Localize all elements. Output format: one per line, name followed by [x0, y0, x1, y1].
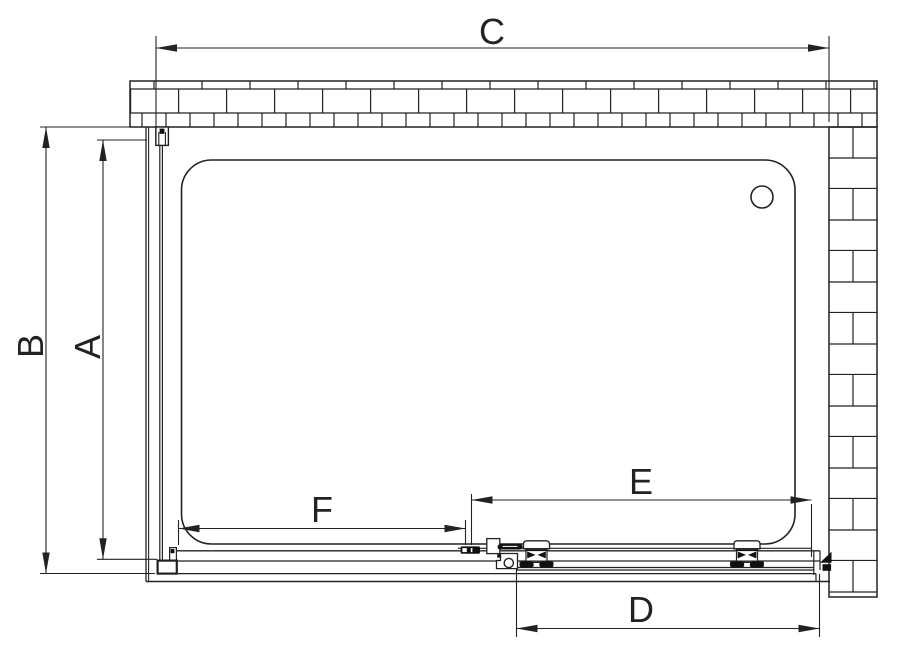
door-guide — [497, 554, 518, 569]
dimension-f: F — [179, 489, 466, 545]
dimension-label-f: F — [311, 489, 333, 530]
bottom-wall-profile — [158, 548, 177, 574]
arrowhead-right-icon — [799, 625, 820, 632]
glass-clamp-block — [160, 129, 165, 134]
dimension-e: E — [472, 461, 812, 557]
arrowhead-left-icon — [472, 496, 493, 503]
right-wall — [829, 127, 877, 597]
door-bumper — [498, 544, 523, 549]
bottom-rail — [177, 539, 832, 582]
arrowhead-right-icon — [808, 44, 829, 51]
stopper-slit — [471, 548, 473, 552]
guide-block — [497, 554, 500, 557]
shower-tray-outline — [182, 160, 796, 544]
technical-drawing-page: C B A F E — [0, 0, 900, 650]
left-roller — [520, 541, 554, 568]
wall-clamp — [820, 552, 832, 571]
dimension-label-d: D — [628, 589, 654, 630]
dimension-label-a: A — [67, 335, 108, 359]
clamp-block — [823, 564, 832, 571]
arrowhead-down-icon — [99, 538, 106, 559]
guide-wheel — [504, 558, 513, 567]
shower-tray — [182, 160, 796, 544]
right-roller — [730, 541, 764, 568]
right-wall-bricks — [829, 127, 877, 597]
profile-foot — [158, 561, 177, 574]
top-wall-profile — [156, 127, 169, 145]
dimension-d: D — [517, 569, 820, 637]
arrowhead-left-icon — [156, 44, 177, 51]
top-wall — [130, 81, 877, 127]
dimension-label-b: B — [10, 334, 51, 358]
bumper-slit — [503, 546, 518, 547]
glass-hole — [751, 186, 773, 208]
arrowhead-up-icon — [42, 127, 49, 148]
shower-enclosure-diagram: C B A F E — [0, 0, 900, 650]
glass-holder-block — [171, 549, 175, 553]
top-wall-bricks — [130, 81, 877, 127]
arrowhead-right-icon — [791, 496, 812, 503]
dimension-a: A — [67, 140, 157, 559]
door-stopper — [461, 546, 480, 553]
dimension-label-e: E — [629, 461, 653, 502]
clamp-wedge — [820, 552, 832, 563]
dimension-label-c: C — [479, 11, 505, 52]
arrowhead-down-icon — [42, 553, 49, 574]
arrowhead-right-icon — [445, 525, 466, 532]
arrowhead-left-icon — [517, 625, 538, 632]
stopper-slot — [462, 548, 466, 552]
fixed-glass-panel — [160, 146, 163, 561]
arrowhead-up-icon — [99, 140, 106, 161]
arrowhead-left-icon — [179, 525, 200, 532]
enclosure-frame — [146, 127, 830, 582]
